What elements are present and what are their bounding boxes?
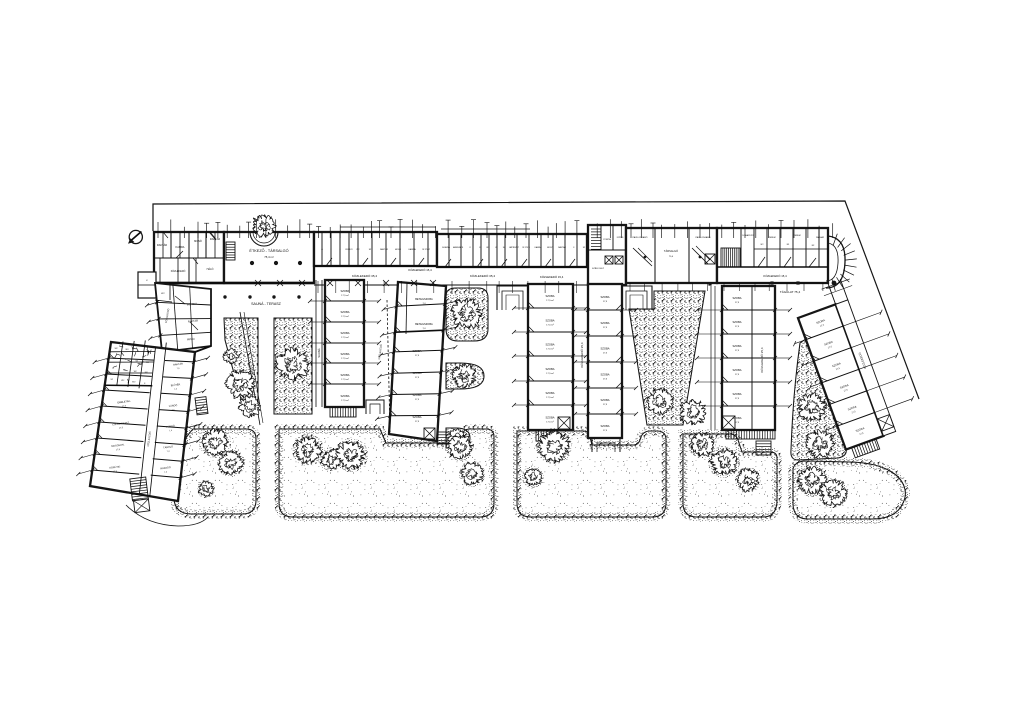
svg-text:75,4 m²: 75,4 m²	[264, 255, 274, 259]
svg-text:HÁLÓ: HÁLÓ	[207, 268, 214, 271]
svg-text:SZAUNA: SZAUNA	[442, 246, 450, 249]
svg-text:KAMRA: KAMRA	[176, 246, 185, 249]
svg-text:SZOBA: SZOBA	[340, 373, 349, 377]
svg-text:KÖZLEKEDŐ: KÖZLEKEDŐ	[171, 270, 186, 273]
svg-text:SZOBA: SZOBA	[340, 352, 349, 356]
svg-text:KÖZLEKEDŐ 35,4: KÖZLEKEDŐ 35,4	[352, 273, 377, 278]
svg-text:SZOBA: SZOBA	[340, 289, 349, 293]
svg-text:RAKTÁR: RAKTÁR	[157, 244, 167, 247]
svg-text:17,5 m²: 17,5 m²	[341, 315, 349, 318]
svg-text:SZÉLFOGÓ: SZÉLFOGÓ	[592, 267, 604, 270]
svg-text:SZOBA: SZOBA	[732, 344, 741, 348]
svg-text:SZOBA: SZOBA	[732, 416, 741, 420]
svg-text:RAKTÁR: RAKTÁR	[380, 248, 389, 251]
svg-text:17,5 m²: 17,5 m²	[546, 323, 554, 326]
svg-text:MOSÓ: MOSÓ	[194, 240, 202, 243]
svg-text:RAKTÁR: RAKTÁR	[558, 246, 566, 249]
svg-text:PORTA: PORTA	[603, 238, 611, 241]
svg-text:SZOBA: SZOBA	[732, 320, 741, 324]
svg-text:ZÁRHÁZ: ZÁRHÁZ	[816, 236, 825, 239]
svg-text:17,5 m²: 17,5 m²	[341, 294, 349, 297]
svg-text:SZOBA: SZOBA	[412, 415, 421, 419]
svg-text:M2: M2	[812, 245, 815, 247]
svg-text:17,5 m²: 17,5 m²	[546, 372, 554, 375]
svg-text:KÖZLEKEDŐ 35,4: KÖZLEKEDŐ 35,4	[759, 347, 764, 372]
svg-text:SZOBA: SZOBA	[545, 343, 554, 347]
svg-text:SZOBA: SZOBA	[545, 391, 554, 395]
svg-text:KÖZLEKEDŐ 35,4: KÖZLEKEDŐ 35,4	[579, 342, 584, 367]
svg-text:MOSÓ: MOSÓ	[395, 248, 402, 251]
svg-text:MO: MO	[145, 372, 149, 374]
svg-text:SAUNÁ: SAUNÁ	[317, 348, 321, 357]
svg-text:17,5 m²: 17,5 m²	[341, 336, 349, 339]
svg-text:DOHÁNYZÓ: DOHÁNYZÓ	[742, 234, 754, 237]
svg-text:MASSZÁZS: MASSZÁZS	[453, 246, 464, 249]
svg-text:KÖZLEKEDŐ 35,4: KÖZLEKEDŐ 35,4	[470, 273, 495, 278]
svg-text:TEREM: TEREM	[769, 237, 776, 239]
svg-text:SZOBA: SZOBA	[412, 371, 421, 375]
svg-text:TÁGULAT 75,4: TÁGULAT 75,4	[780, 290, 801, 294]
svg-text:WC: WC	[161, 293, 165, 295]
svg-text:FŰTÉS: FŰTÉS	[617, 236, 624, 239]
svg-text:SZOBA: SZOBA	[600, 372, 609, 376]
svg-text:17,5 m²: 17,5 m²	[546, 396, 554, 399]
svg-text:SZOBA: SZOBA	[600, 398, 609, 402]
svg-text:SZOBA: SZOBA	[340, 394, 349, 398]
svg-text:17,5 m²: 17,5 m²	[546, 299, 554, 302]
svg-text:17,5 m²: 17,5 m²	[546, 348, 554, 351]
svg-text:17,5 m²: 17,5 m²	[341, 399, 349, 402]
svg-text:BETEGSZOBA: BETEGSZOBA	[415, 297, 433, 301]
svg-text:PAVILONJÁRÓ: PAVILONJÁRÓ	[633, 236, 648, 239]
svg-text:MO: MO	[132, 382, 136, 384]
svg-text:SZOBA: SZOBA	[340, 331, 349, 335]
svg-text:MO: MO	[126, 349, 130, 351]
svg-text:GÉPÉSZET: GÉPÉSZET	[509, 246, 520, 249]
svg-text:SZOBA: SZOBA	[732, 368, 741, 372]
svg-text:SZOBA: SZOBA	[600, 295, 609, 299]
svg-text:17,5 m²: 17,5 m²	[341, 357, 349, 360]
svg-text:SZOBA: SZOBA	[340, 310, 349, 314]
svg-text:ÖLTÖZŐ: ÖLTÖZŐ	[522, 246, 530, 249]
svg-text:SZOBA: SZOBA	[545, 318, 554, 322]
svg-text:TEREM: TEREM	[794, 235, 801, 237]
svg-text:SZOBA: SZOBA	[545, 294, 554, 298]
svg-text:MO: MO	[113, 358, 117, 360]
svg-text:SZOBA: SZOBA	[412, 349, 421, 353]
svg-text:ÖLTÖZŐ: ÖLTÖZŐ	[422, 248, 431, 251]
svg-text:SAUNÁ - TERASZ: SAUNÁ - TERASZ	[251, 302, 281, 306]
svg-text:17,5 m²: 17,5 m²	[546, 421, 554, 424]
svg-text:SZOBA: SZOBA	[545, 367, 554, 371]
svg-text:SZOBA: SZOBA	[600, 321, 609, 325]
svg-text:M1: M1	[787, 244, 790, 246]
svg-text:MOSÓ: MOSÓ	[547, 246, 553, 249]
svg-text:KÖZLEKEDŐ 15,4: KÖZLEKEDŐ 15,4	[408, 267, 432, 272]
svg-text:WC: WC	[356, 249, 360, 251]
svg-text:SZOBA: SZOBA	[600, 424, 609, 428]
svg-text:FÜRDŐ: FÜRDŐ	[345, 248, 353, 251]
svg-text:17,5 m²: 17,5 m²	[341, 378, 349, 381]
svg-text:SZOBA: SZOBA	[732, 296, 741, 300]
svg-text:PAVILONJÁRÓ: PAVILONJÁRÓ	[696, 236, 711, 239]
svg-text:SZOBA: SZOBA	[732, 392, 741, 396]
svg-text:KAMRA: KAMRA	[408, 248, 416, 251]
svg-text:KÖZLEKEDŐ 15,4: KÖZLEKEDŐ 15,4	[540, 274, 564, 279]
svg-text:SZOBA: SZOBA	[412, 393, 421, 397]
svg-text:KAMRA: KAMRA	[535, 246, 542, 249]
svg-text:SZOBA: SZOBA	[545, 416, 554, 420]
svg-text:SZOBA: SZOBA	[600, 347, 609, 351]
svg-text:BETEGSZOBA: BETEGSZOBA	[415, 322, 433, 326]
svg-text:KÖZLEKEDŐ 15,4: KÖZLEKEDŐ 15,4	[763, 273, 787, 278]
svg-text:ÉTKEZŐ - TÁRSALGÓ: ÉTKEZŐ - TÁRSALGÓ	[249, 248, 288, 253]
